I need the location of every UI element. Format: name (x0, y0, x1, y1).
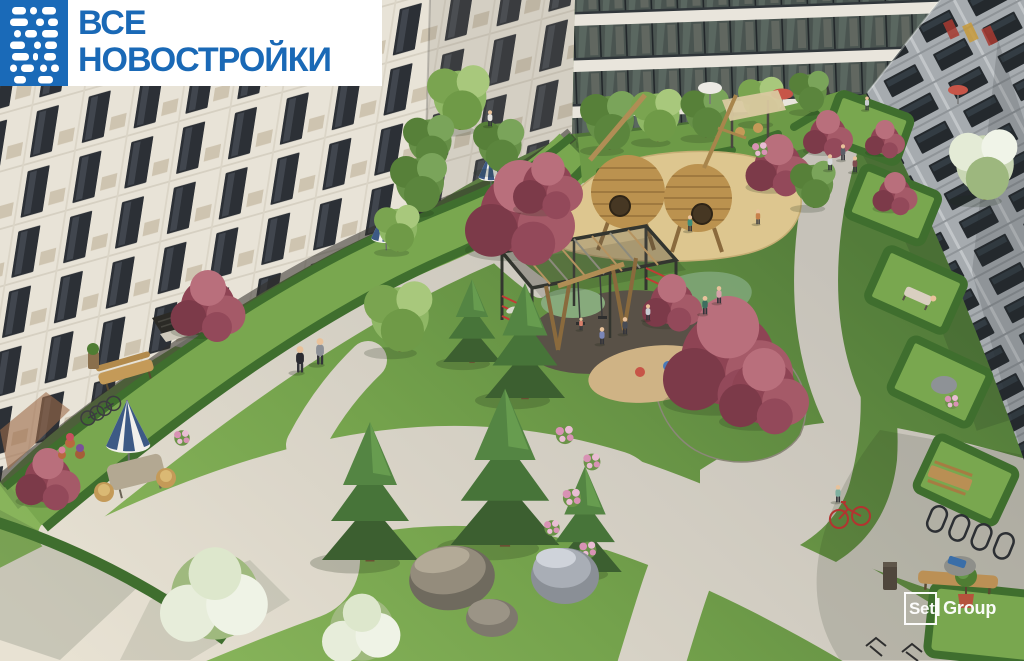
logo-line-1: ВСЕ (78, 5, 366, 42)
trash-bin (883, 562, 897, 590)
setl-bar-letter: l (935, 595, 941, 620)
watermark-group: Group (943, 598, 996, 619)
courtyard-render-image: ВСЕ НОВОСТРОЙКИ Set l Group (0, 0, 1024, 661)
developer-watermark: Set l Group (904, 592, 996, 625)
site-logo: ВСЕ НОВОСТРОЙКИ (0, 0, 382, 86)
watermark-set: Set (909, 599, 935, 619)
setl-square-outline-icon: Set (904, 592, 937, 625)
scene-svg (0, 0, 1024, 661)
bean-bag (931, 376, 957, 394)
logo-line-2: НОВОСТРОЙКИ (78, 42, 366, 79)
site-logo-wordmark: ВСЕ НОВОСТРОЙКИ (68, 0, 382, 86)
morse-building-icon (0, 0, 68, 86)
